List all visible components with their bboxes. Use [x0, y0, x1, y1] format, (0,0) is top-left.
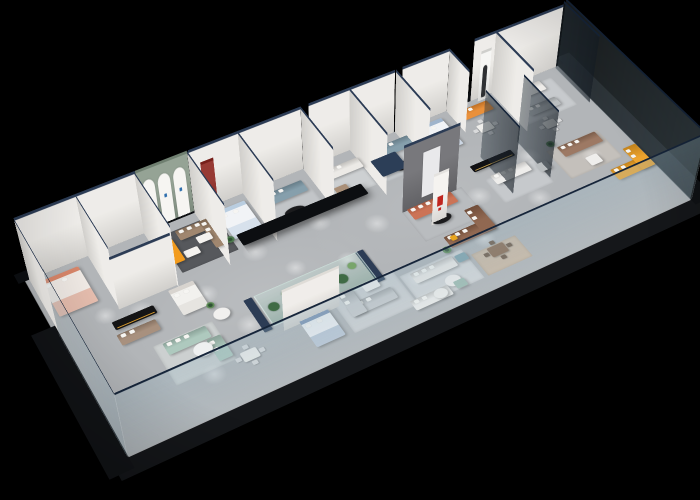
pillow [574, 140, 580, 144]
pillow [233, 209, 239, 214]
pillow [466, 210, 472, 215]
pillow [183, 289, 190, 294]
pillow [178, 229, 184, 234]
pillow [388, 142, 394, 146]
dining-chair [473, 129, 480, 134]
pillow [560, 145, 566, 149]
brand-logo-icon [164, 193, 167, 197]
plant-leaves [207, 303, 213, 308]
pillow [120, 333, 127, 338]
pillow [336, 165, 342, 169]
pillow [174, 293, 181, 298]
pillow [630, 154, 636, 158]
display-arch [172, 165, 191, 219]
pillow [410, 207, 416, 212]
pillow [175, 338, 182, 343]
brand-mark [437, 195, 443, 207]
pillow [425, 201, 431, 206]
pillow [471, 216, 478, 221]
pillow [430, 126, 436, 130]
brand-logo-icon [179, 187, 182, 191]
pillow [417, 204, 423, 209]
pillow [61, 277, 68, 282]
pillow [278, 189, 284, 193]
pillow [567, 142, 573, 146]
pillow [166, 341, 173, 346]
pillow [186, 226, 192, 231]
pillow [129, 329, 136, 334]
floor-plan [23, 63, 692, 459]
pillow [467, 107, 473, 111]
pillow [625, 149, 631, 153]
showroom-render [0, 0, 700, 500]
pillow [493, 174, 499, 178]
pillow [462, 229, 469, 234]
pillow [183, 334, 190, 339]
brand-mark-sub [438, 207, 441, 211]
